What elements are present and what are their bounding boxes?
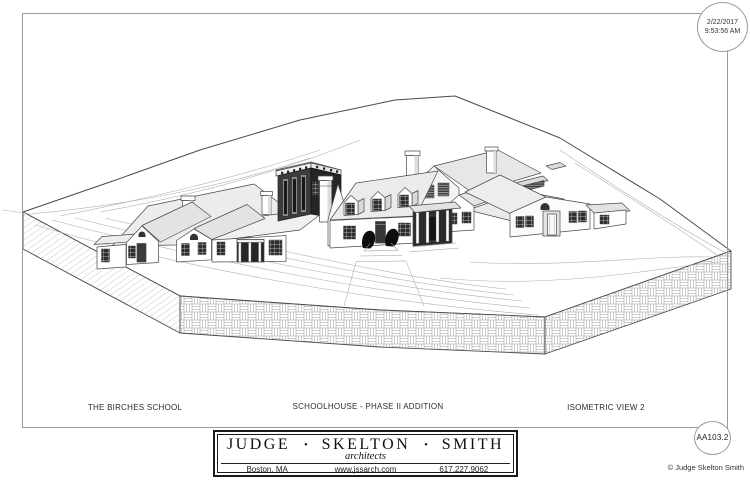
sheet-number: AA103.2 (696, 433, 728, 442)
stamp-time: 9:53:56 AM (698, 28, 747, 37)
copyright-icon: © (668, 463, 674, 472)
drawing-sheet: 2/22/2017 9:53:56 AM THE BIRCHES SCHOOL … (0, 0, 750, 485)
copyright-text: Judge Skelton Smith (675, 463, 744, 472)
firm-name-judge: JUDGE (227, 436, 290, 454)
sheet-number-bubble: AA103.2 (694, 421, 731, 455)
copyright-note: © Judge Skelton Smith (594, 463, 744, 472)
firm-website: www.jssarch.com (316, 465, 414, 474)
firm-name-separator-dot: • (304, 440, 308, 451)
project-name-label: THE BIRCHES SCHOOL (70, 403, 200, 412)
date-stamp-circle: 2/22/2017 9:53:56 AM (697, 2, 748, 52)
firm-name-separator-dot: • (424, 440, 428, 451)
title-block: JUDGE • SKELTON • SMITH architects Bosto… (213, 430, 518, 477)
firm-address: Boston, MA (218, 465, 316, 474)
drawing-title-label: SCHOOLHOUSE - PHASE II ADDITION (278, 402, 458, 411)
firm-name-smith: SMITH (442, 436, 504, 454)
stamp-date: 2/22/2017 (698, 19, 747, 28)
title-block-inner-border: JUDGE • SKELTON • SMITH architects Bosto… (217, 434, 514, 473)
firm-contact-row: Boston, MA www.jssarch.com 617.227.9062 (218, 465, 513, 474)
view-name-label: ISOMETRIC VIEW 2 (546, 403, 666, 412)
firm-phone: 617.227.9062 (415, 465, 513, 474)
sheet-border (22, 13, 728, 428)
title-block-divider (221, 463, 510, 464)
